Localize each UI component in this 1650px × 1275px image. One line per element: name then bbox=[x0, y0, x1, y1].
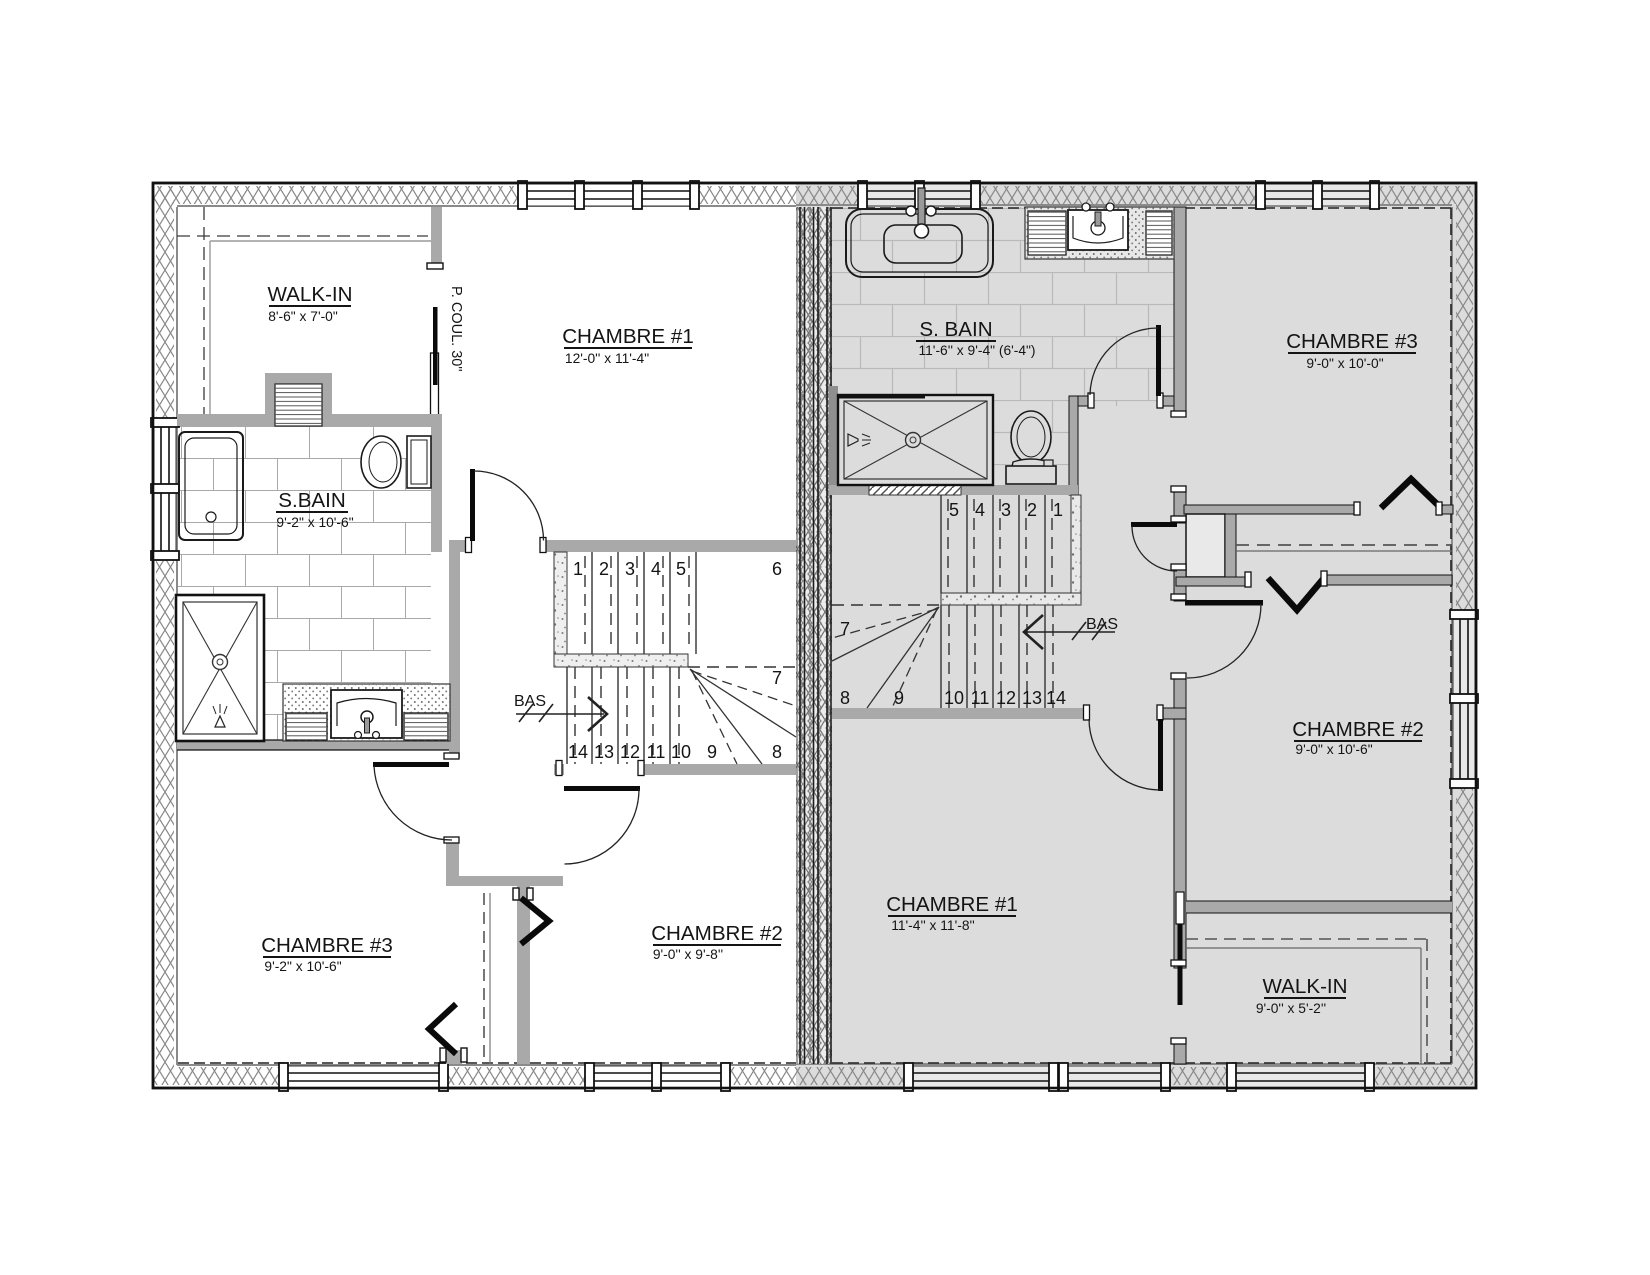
svg-text:11'-6'' x 9'-4" (6'-4"): 11'-6'' x 9'-4" (6'-4") bbox=[918, 343, 1035, 358]
svg-text:4: 4 bbox=[975, 500, 985, 520]
svg-text:6: 6 bbox=[772, 559, 782, 579]
svg-text:CHAMBRE #1: CHAMBRE #1 bbox=[886, 893, 1018, 916]
svg-text:8'-6" x 7'-0": 8'-6" x 7'-0" bbox=[268, 309, 338, 324]
svg-text:2: 2 bbox=[599, 559, 609, 579]
svg-text:8: 8 bbox=[772, 742, 782, 762]
svg-text:12'-0'' x 11'-4": 12'-0'' x 11'-4" bbox=[565, 351, 649, 366]
svg-text:12: 12 bbox=[996, 688, 1016, 708]
svg-text:CHAMBRE #2: CHAMBRE #2 bbox=[651, 922, 783, 945]
svg-text:10: 10 bbox=[671, 742, 691, 762]
svg-text:13: 13 bbox=[1022, 688, 1042, 708]
svg-text:9'-2" x 10'-6": 9'-2" x 10'-6" bbox=[276, 515, 353, 530]
svg-text:5: 5 bbox=[949, 500, 959, 520]
svg-text:8: 8 bbox=[840, 688, 850, 708]
svg-text:7: 7 bbox=[772, 668, 782, 688]
svg-text:10: 10 bbox=[944, 688, 964, 708]
svg-text:11'-4'' x 11'-8'': 11'-4'' x 11'-8'' bbox=[891, 918, 975, 933]
svg-text:9'-2" x 10'-6": 9'-2" x 10'-6" bbox=[264, 959, 341, 974]
svg-text:S. BAIN: S. BAIN bbox=[919, 318, 992, 341]
svg-text:S.BAIN: S.BAIN bbox=[278, 489, 346, 512]
svg-text:12: 12 bbox=[620, 742, 640, 762]
svg-text:9'-0'' x 9'-8'': 9'-0'' x 9'-8'' bbox=[653, 947, 723, 962]
svg-text:9'-0" x 10'-6": 9'-0" x 10'-6" bbox=[1295, 742, 1372, 757]
svg-text:P. COUL. 30": P. COUL. 30" bbox=[448, 286, 464, 371]
svg-text:3: 3 bbox=[625, 559, 635, 579]
svg-text:CHAMBRE #2: CHAMBRE #2 bbox=[1292, 718, 1424, 741]
svg-text:13: 13 bbox=[594, 742, 614, 762]
svg-text:4: 4 bbox=[651, 559, 661, 579]
svg-text:CHAMBRE #1: CHAMBRE #1 bbox=[562, 325, 694, 348]
svg-text:5: 5 bbox=[676, 559, 686, 579]
svg-text:1: 1 bbox=[1053, 500, 1063, 520]
svg-text:2: 2 bbox=[1027, 500, 1037, 520]
svg-text:BAS: BAS bbox=[514, 693, 546, 710]
svg-text:11: 11 bbox=[647, 742, 666, 762]
svg-text:9: 9 bbox=[707, 742, 717, 762]
svg-text:9'-0" x 10'-0": 9'-0" x 10'-0" bbox=[1306, 356, 1383, 371]
svg-text:CHAMBRE #3: CHAMBRE #3 bbox=[1286, 330, 1418, 353]
svg-text:3: 3 bbox=[1001, 500, 1011, 520]
svg-text:9: 9 bbox=[894, 688, 904, 708]
svg-text:1: 1 bbox=[573, 559, 583, 579]
svg-text:BAS: BAS bbox=[1086, 616, 1118, 633]
svg-text:7: 7 bbox=[840, 619, 850, 639]
svg-text:14: 14 bbox=[568, 742, 588, 762]
svg-text:11: 11 bbox=[971, 688, 990, 708]
svg-text:CHAMBRE #3: CHAMBRE #3 bbox=[261, 934, 393, 957]
svg-text:14: 14 bbox=[1046, 688, 1066, 708]
svg-text:WALK-IN: WALK-IN bbox=[267, 283, 352, 306]
svg-text:9'-0'' x 5'-2'': 9'-0'' x 5'-2'' bbox=[1256, 1001, 1326, 1016]
svg-text:WALK-IN: WALK-IN bbox=[1262, 975, 1347, 998]
